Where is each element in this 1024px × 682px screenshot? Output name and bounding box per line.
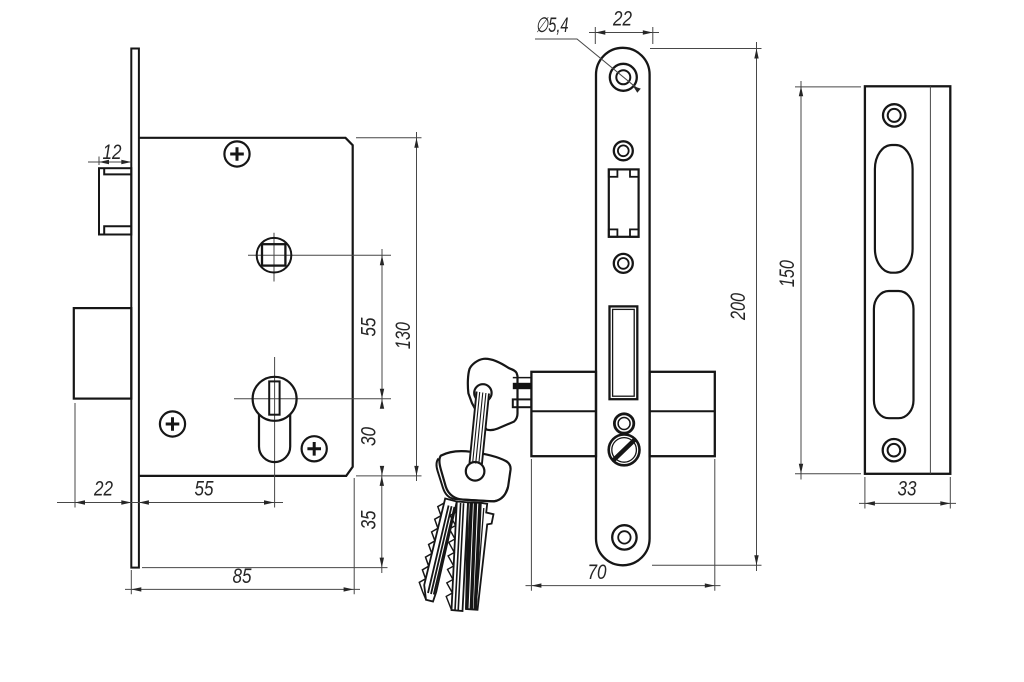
svg-text:12: 12 — [103, 141, 122, 164]
svg-text:∅5,4: ∅5,4 — [536, 14, 569, 37]
svg-text:130: 130 — [392, 322, 415, 349]
svg-text:70: 70 — [588, 561, 607, 584]
svg-text:22: 22 — [612, 8, 632, 31]
svg-text:35: 35 — [358, 510, 381, 529]
svg-text:33: 33 — [898, 478, 917, 501]
svg-text:55: 55 — [358, 317, 381, 336]
svg-text:30: 30 — [358, 427, 381, 446]
svg-text:150: 150 — [776, 260, 799, 287]
svg-text:55: 55 — [195, 478, 214, 501]
svg-text:85: 85 — [233, 565, 252, 588]
svg-text:22: 22 — [93, 478, 113, 501]
svg-text:200: 200 — [727, 293, 750, 321]
